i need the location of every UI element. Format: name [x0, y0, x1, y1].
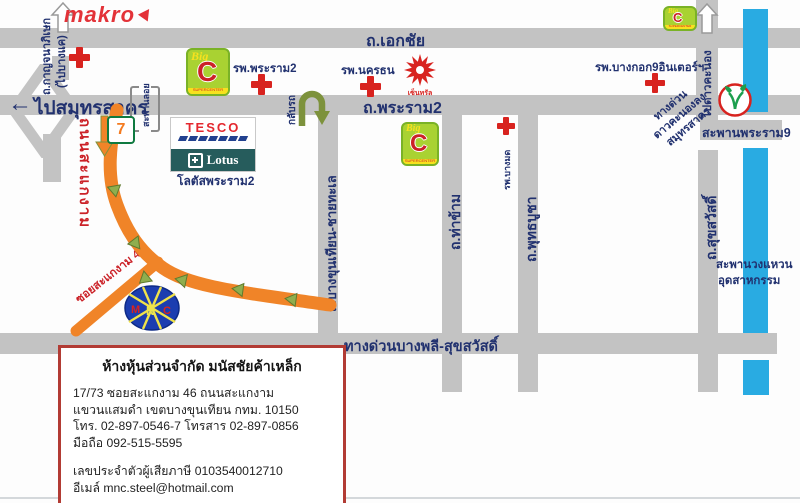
footbridge-bracket-right	[151, 86, 160, 132]
kbank-logo	[717, 82, 753, 118]
company-taxid: เลขประจำตัวผู้เสียภาษี 0103540012710	[73, 463, 331, 480]
blue-line-mid	[743, 148, 768, 333]
company-name: ห้างหุ้นส่วนจำกัด มนัสชัยค้าเหล็ก	[73, 356, 331, 378]
mnc-shop-badge: M N C	[123, 284, 181, 332]
nakhonthon-hospital-cross-icon	[360, 76, 381, 97]
lotus-band: Lotus	[171, 149, 255, 171]
seven-eleven-logo: 7	[107, 116, 135, 144]
label-central: เซ็นทรัล	[399, 88, 441, 99]
label-bangkhunthian: ถ.บางขุนเทียน-ชายทะเล	[321, 175, 342, 312]
label-expressway: ทางด่วนบางพลี-สุขสวัสดิ์	[344, 335, 498, 358]
rama2-hospital-cross-icon	[251, 74, 272, 95]
company-mobile: มือถือ 092-515-5595	[73, 435, 331, 452]
label-suksawat: ถ.สุขสวัสดิ์	[701, 195, 723, 260]
label-thakham: ถ.ท่าข้าม	[445, 194, 467, 250]
road-stub-suksawat	[698, 354, 718, 392]
tesco-dash-row	[171, 136, 255, 141]
lotus-logo-text: Lotus	[207, 152, 239, 168]
label-u-turn: กลับรถ	[285, 95, 300, 125]
road-stub-phutthabucha	[518, 354, 538, 392]
tesco-lotus-sign: TESCO Lotus	[170, 117, 256, 172]
interchange-stub-bottom	[43, 134, 61, 182]
mnc-letter-m: M	[131, 304, 140, 316]
bigc-daokhanong-logo: Big C SUPERCENTER	[663, 6, 697, 31]
label-rama2: ถ.พระราม2	[363, 96, 442, 121]
left-arrow-icon: ←	[8, 90, 32, 118]
lotus-flower-icon	[188, 153, 203, 168]
bigc-strip-text: SUPERCENTER	[403, 159, 437, 164]
company-info-box: ห้างหุ้นส่วนจำกัด มนัสชัยค้าเหล็ก 17/73 …	[58, 345, 346, 503]
bigc-c-text: C	[197, 58, 217, 86]
blue-line-bottom	[743, 360, 769, 395]
bigc-strip-text: SUPERCENTER	[665, 25, 695, 29]
label-phutthabucha: ถ.พุทธบูชา	[521, 196, 543, 262]
label-to-bangkhae: (ไปบางแค)	[52, 35, 70, 88]
bigc-rama2-logo: Big C SUPERCENTER	[186, 48, 230, 96]
tesco-logo-text: TESCO	[171, 120, 255, 135]
bigc-c-text: C	[410, 132, 427, 156]
mnc-letter-n: N	[146, 304, 155, 318]
label-lotus-caption: โลตัสพระราม2	[177, 172, 254, 191]
label-ekachai: ถ.เอกชัย	[366, 29, 425, 54]
bigc-south-logo: Big C SUPERCENTER	[401, 122, 439, 166]
bigc-c-text: C	[673, 11, 682, 24]
company-phone: โทร. 02-897-0546-7 โทรสาร 02-897-0856	[73, 418, 331, 435]
bangmod-hospital-cross-icon	[497, 117, 515, 135]
label-rama9-bridge: สะพานพระราม9	[702, 123, 791, 143]
mnc-letter-c: C	[163, 305, 171, 317]
road-stub-thakham	[442, 354, 462, 392]
makro-logo: makro	[64, 2, 135, 28]
company-address-1: 17/73 ซอยสะแกงาม 46 ถนนสะแกงาม	[73, 385, 331, 402]
ekachai-hospital-cross-icon	[69, 47, 90, 68]
label-industrial-ring-2: อุดสาหกรรม	[718, 272, 780, 290]
bangkok9-hospital-cross-icon	[645, 73, 665, 93]
map-canvas: ถ.เอกชัย ถ.พระราม2 ← ไปสมุทรสาคร ทางด่วน…	[0, 0, 800, 503]
bigc-strip-text: SUPERCENTER	[188, 88, 228, 94]
company-address-2: แขวนแสมดำ เขตบางขุนเทียน กทม. 10150	[73, 402, 331, 419]
company-email: อีเมล์ mnc.steel@hotmail.com	[73, 480, 331, 497]
central-sunburst-icon	[402, 52, 438, 88]
label-bangmod-hospital: รพ.บางมด	[500, 150, 514, 190]
label-sakae-ngam: ถนนสะแกงาม	[73, 118, 97, 229]
makro-logo-tick	[138, 6, 154, 22]
